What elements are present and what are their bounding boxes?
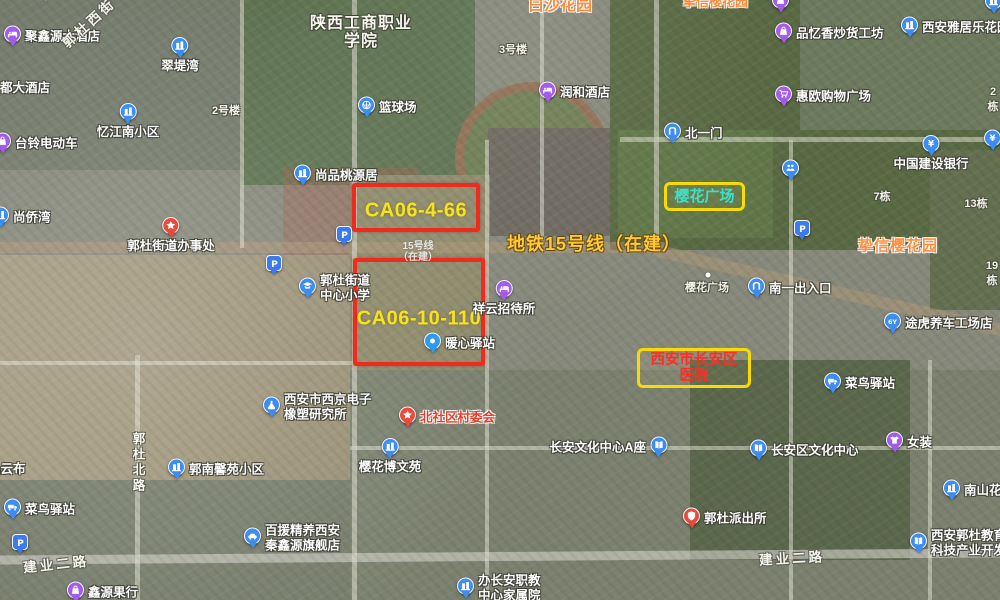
poi-label: 都大酒店 xyxy=(0,81,50,95)
svg-text:P: P xyxy=(341,229,348,239)
shirt-icon xyxy=(886,432,903,453)
poi-label: 翠堤湾 xyxy=(161,59,199,73)
yijiangnan-community[interactable]: 忆江南小区 xyxy=(97,103,160,139)
xinyuan-fruit-shop[interactable]: 鑫源果行 xyxy=(67,582,138,600)
poi-label: 台铃电动车 xyxy=(15,136,78,150)
poi-label: 祥云招待所 xyxy=(473,302,536,316)
flask-icon xyxy=(263,397,280,418)
poi-label: 品忆香炒货工坊 xyxy=(796,26,884,40)
car-icon xyxy=(244,528,261,549)
clipped-estate-label: 白沙花园 xyxy=(528,0,592,15)
truck-icon xyxy=(824,373,841,394)
poi-label: 菜鸟驿站 xyxy=(25,502,75,516)
building-icon xyxy=(0,207,9,228)
satellite-map-canvas[interactable]: CA06-4-66CA06-10-110樱花广场西安市长安区 医院 聚鑫源大酒店… xyxy=(0,0,1000,600)
building-no-19dong: 19栋 xyxy=(986,260,998,288)
poi-label: 郭杜派出所 xyxy=(704,511,767,525)
womens-clothing-shop[interactable]: 女装 xyxy=(886,432,932,453)
poi-label: 郭杜街道办事处 xyxy=(127,239,215,253)
poi-label: 尚品桃源居 xyxy=(315,168,378,182)
star-icon xyxy=(162,217,179,238)
bank-icon: ¥ xyxy=(922,135,939,156)
parking-school[interactable]: P xyxy=(336,226,352,246)
yuan-icon: ¥ xyxy=(984,130,1000,151)
road-name-label: 建业二路 xyxy=(759,545,826,568)
poi-label: 篮球场 xyxy=(379,100,417,114)
bag-icon xyxy=(772,0,789,13)
building-icon xyxy=(294,165,311,186)
clipped-poi-top-right[interactable] xyxy=(985,0,1000,14)
clipped-estate-label: 挚信樱花园 xyxy=(683,0,748,10)
poi-label: 品云布 xyxy=(0,462,26,476)
poi-label: 中心家属院 xyxy=(478,589,541,600)
building-icon xyxy=(901,17,918,38)
xijing-electronics-institute[interactable]: 西安市西京电子橡塑研究所 xyxy=(263,393,372,422)
poi-label: 尚侨湾 xyxy=(13,210,51,224)
star-icon xyxy=(399,407,416,428)
cainiao-station-west[interactable]: 菜鸟驿站 xyxy=(4,499,75,520)
bag-icon xyxy=(0,133,11,154)
metro-station-faint-label: 15号线 （在建） xyxy=(398,241,438,263)
ccb-bank[interactable]: ¥中国建设银行 xyxy=(893,135,968,171)
poi-label: 樱花博文苑 xyxy=(359,460,422,474)
yinghua-bowenyuan[interactable]: 樱花博文苑 xyxy=(359,438,422,474)
atm-poi[interactable]: ¥ xyxy=(984,130,1000,151)
cainiao-station-east[interactable]: 菜鸟驿站 xyxy=(824,373,895,394)
gate-icon xyxy=(748,278,765,299)
poi-label: 西安雅居乐花园 xyxy=(922,20,1000,34)
cuidiwan-community[interactable]: 翠堤湾 xyxy=(161,37,199,73)
parking-icon: P xyxy=(794,220,810,240)
clipped-poi-top[interactable] xyxy=(772,0,789,13)
basketball-court[interactable]: 篮球场 xyxy=(358,97,417,118)
poi-label: 鑫源果行 xyxy=(88,585,138,599)
bed-icon xyxy=(495,280,512,301)
guodu-police-station[interactable]: 郭杜派出所 xyxy=(683,508,767,529)
poi-label: 惠欧购物广场 xyxy=(796,89,871,103)
gate-icon xyxy=(664,123,681,144)
svg-text:6Y: 6Y xyxy=(888,318,897,326)
parking-sakura[interactable]: P xyxy=(794,220,810,240)
parking-icon: P xyxy=(12,534,28,554)
svg-text:P: P xyxy=(799,223,806,233)
sakura-square-dot xyxy=(706,273,711,278)
school-icon xyxy=(299,278,316,299)
svg-text:¥: ¥ xyxy=(928,140,934,149)
building-icon xyxy=(943,480,960,501)
shangqiaowan[interactable]: 尚侨湾 xyxy=(0,207,51,228)
duda-hotel: 都大酒店 xyxy=(0,81,50,95)
poi-label: 百援精养西安 xyxy=(265,524,340,538)
guodu-central-primary-school[interactable]: 郭杜街道中心小学 xyxy=(299,274,370,303)
parking-west[interactable]: P xyxy=(266,255,282,275)
poi-label: 润和酒店 xyxy=(560,85,610,99)
svg-text:¥: ¥ xyxy=(989,134,995,143)
poi-label: 科技产业开发 xyxy=(931,544,1000,558)
huiou-shopping-plaza[interactable]: 惠欧购物广场 xyxy=(775,86,871,107)
building-no-13dong: 13栋 xyxy=(964,195,987,211)
poi-label: 长安文化中心A座 xyxy=(549,440,646,454)
building-icon xyxy=(171,37,188,58)
cart-icon xyxy=(775,86,792,107)
building-icon xyxy=(457,578,474,599)
highlight-label: 西安市长安区 医院 xyxy=(651,352,738,385)
poi-label: 北一门 xyxy=(685,126,723,140)
building-icon xyxy=(119,103,136,124)
bed-icon xyxy=(4,26,21,47)
book-icon xyxy=(910,533,927,554)
college-label: 陕西工商职业 学院 xyxy=(310,15,412,51)
bag-icon xyxy=(775,23,792,44)
tuhu-icon: 6Y xyxy=(884,313,901,334)
parking-icon: P xyxy=(266,255,282,275)
baiyuan-car-care[interactable]: 百援精养西安秦鑫源旗舰店 xyxy=(244,524,340,553)
ball-icon xyxy=(358,97,375,118)
nuanxin-post[interactable]: 暖心驿站 xyxy=(424,333,495,354)
xiangyun-guesthouse[interactable]: 祥云招待所 xyxy=(473,280,536,316)
bag-icon xyxy=(67,582,84,600)
badge-icon xyxy=(683,508,700,529)
parking-icon: P xyxy=(336,226,352,246)
poi-label: 秦鑫源旗舰店 xyxy=(265,539,340,553)
yajule-garden[interactable]: 西安雅居乐花园 xyxy=(901,17,1000,38)
parcel-code-label: CA06-4-66 xyxy=(365,200,467,223)
poi-label: 南一出入口 xyxy=(769,281,832,295)
poi-label: 暖心驿站 xyxy=(445,336,495,350)
south-exit-one[interactable]: 南一出入口 xyxy=(748,278,832,299)
guonan-xinyuan-community[interactable]: 郭南馨苑小区 xyxy=(168,459,264,480)
poi-label: 女装 xyxy=(907,435,932,449)
beishequ-village-committee[interactable]: 北社区村委会 xyxy=(399,407,495,428)
changan-vocational-housing[interactable]: 办长安职教中心家属院 xyxy=(457,574,541,600)
poi-label: 西安郭杜教育 xyxy=(931,529,1000,543)
north-gate-one[interactable]: 北一门 xyxy=(664,123,723,144)
sakura-square-highlight: 樱花广场 xyxy=(664,182,745,211)
parking-southwest[interactable]: P xyxy=(12,534,28,554)
poi-label: 橡塑研究所 xyxy=(284,408,372,422)
building-no-7dong: 7栋 xyxy=(873,188,890,204)
people-icon xyxy=(782,160,799,181)
highlight-label: 樱花广场 xyxy=(674,188,734,205)
poi-label: 长安区文化中心 xyxy=(771,443,859,457)
building-no-2dong: 2栋 xyxy=(988,86,999,114)
truck-icon xyxy=(4,499,21,520)
parcel-ca06-4-66[interactable]: CA06-4-66 xyxy=(352,183,480,232)
bed-icon xyxy=(539,82,556,103)
tuhu-car-care[interactable]: 6Y途虎养车工场店 xyxy=(884,313,993,334)
book-icon xyxy=(750,440,767,461)
metro-line-15-label: 地铁15号线（在建） xyxy=(507,230,681,256)
zhixin-sakura-estate-label: 挚信樱花园 xyxy=(858,235,938,256)
building-icon xyxy=(381,438,398,459)
poi-label: 郭杜街道 xyxy=(320,274,370,288)
people-poi[interactable] xyxy=(782,160,799,181)
nanshan-garden[interactable]: 南山花园 xyxy=(943,480,1000,501)
poi-label: 南山花园 xyxy=(964,483,1000,497)
guodu-subdistrict-office[interactable]: 郭杜街道办事处 xyxy=(127,217,215,253)
changan-district-cultural-center[interactable]: 长安区文化中心 xyxy=(750,440,859,461)
shangpin-taoyuanju[interactable]: 尚品桃源居 xyxy=(294,165,378,186)
changan-cultural-center-a[interactable]: 长安文化中心A座 xyxy=(549,437,667,458)
poi-label: 中心小学 xyxy=(320,289,370,303)
poi-label: 忆江南小区 xyxy=(97,125,160,139)
poi-label: 途虎养车工场店 xyxy=(905,316,993,330)
poi-label: 中国建设银行 xyxy=(893,157,968,171)
pinyixiang-snack-shop[interactable]: 品忆香炒货工坊 xyxy=(775,23,884,44)
poi-label: 郭南馨苑小区 xyxy=(189,462,264,476)
svg-text:P: P xyxy=(17,537,24,547)
poi-label: 西安市西京电子 xyxy=(284,393,372,407)
runhe-hotel[interactable]: 润和酒店 xyxy=(539,82,610,103)
changan-hospital-highlight: 西安市长安区 医院 xyxy=(637,348,751,388)
guodu-education-tech-park[interactable]: 西安郭杜教育科技产业开发 xyxy=(910,529,1000,558)
parcel-code-label: CA06-10-110 xyxy=(357,308,481,331)
tailing-ebike-shop[interactable]: 台铃电动车 xyxy=(0,133,78,154)
poi-label: 北社区村委会 xyxy=(420,410,495,424)
road-name-label: 郭杜北路 xyxy=(129,432,148,494)
building-no-3haolou: 3号楼 xyxy=(499,41,527,57)
building-no-2haolou: 2号楼 xyxy=(212,102,240,118)
book-icon xyxy=(650,437,667,458)
poi-label: 办长安职教 xyxy=(478,574,541,588)
building-icon xyxy=(985,0,1000,14)
poi-label: 菜鸟驿站 xyxy=(845,376,895,390)
sakura-square-small-label: 樱花广场 xyxy=(685,279,729,295)
dot-icon xyxy=(424,333,441,354)
svg-text:P: P xyxy=(271,258,278,268)
building-icon xyxy=(168,459,185,480)
pinyunbu-shop: 品云布 xyxy=(0,462,26,476)
